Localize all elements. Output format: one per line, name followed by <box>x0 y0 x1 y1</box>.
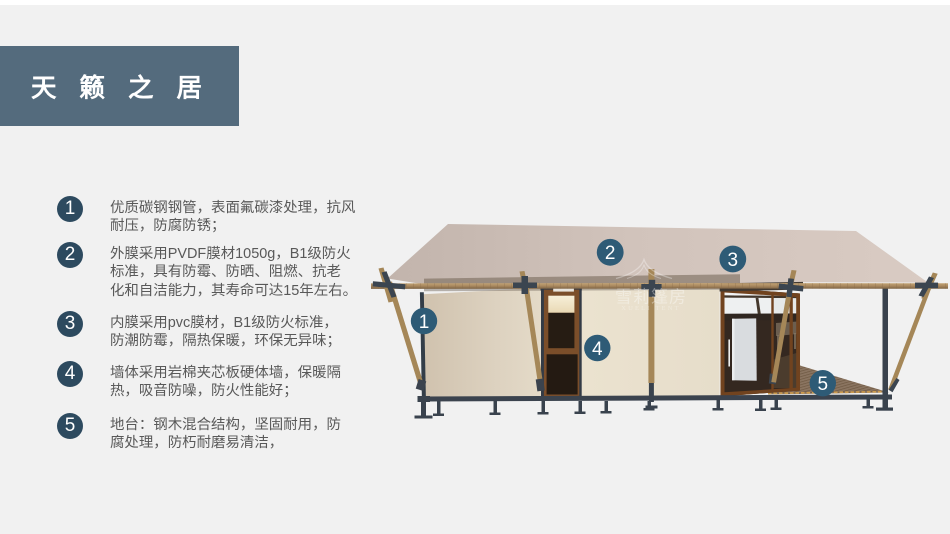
svg-text:5: 5 <box>818 374 829 395</box>
svg-text:3: 3 <box>728 250 739 271</box>
svg-text:4: 4 <box>592 339 603 360</box>
svg-text:2: 2 <box>605 243 616 264</box>
svg-text:XUELI TENT: XUELI TENT <box>621 305 681 312</box>
svg-text:雪莉篷房: 雪莉篷房 <box>615 288 687 307</box>
svg-text:1: 1 <box>419 312 430 333</box>
